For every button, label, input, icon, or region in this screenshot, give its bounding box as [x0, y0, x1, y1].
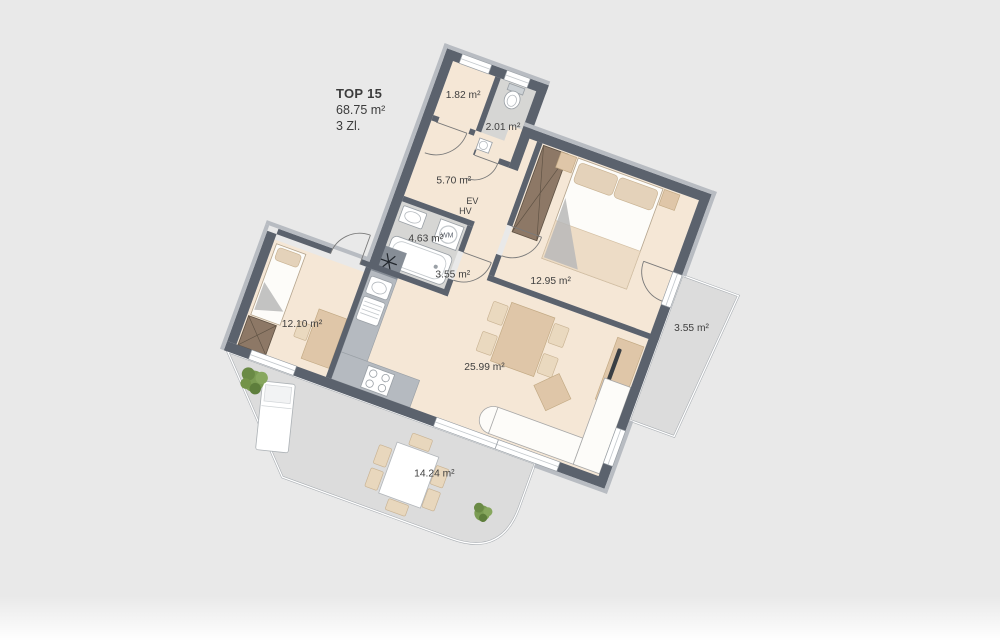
label-bath: 4.63 m²	[408, 233, 443, 244]
unit-area: 68.75 m²	[336, 102, 385, 118]
sun-lounger	[256, 381, 296, 453]
label-hv: HV	[459, 206, 472, 216]
label-bedroom-right: 12.95 m²	[530, 276, 571, 287]
label-ev: EV	[466, 196, 478, 206]
label-living: 25.99 m²	[464, 362, 505, 373]
unit-number: TOP 15	[336, 86, 385, 102]
floorplan-page: WM	[0, 0, 1000, 641]
floorplan-drawing: WM	[0, 0, 1000, 641]
bottom-fade	[0, 596, 1000, 641]
label-bedroom-left: 12.10 m²	[282, 319, 323, 330]
label-balcony: 3.55 m²	[674, 323, 709, 334]
unit-info-block: TOP 15 68.75 m² 3 Zl.	[336, 86, 385, 134]
label-wc: 2.01 m²	[486, 122, 521, 133]
label-hall: 5.70 m²	[436, 175, 471, 186]
unit-room-count: 3 Zl.	[336, 118, 385, 134]
label-storage: 1.82 m²	[446, 90, 481, 101]
label-corridor: 3.55 m²	[435, 269, 470, 280]
label-terrace: 14.24 m²	[414, 469, 455, 480]
